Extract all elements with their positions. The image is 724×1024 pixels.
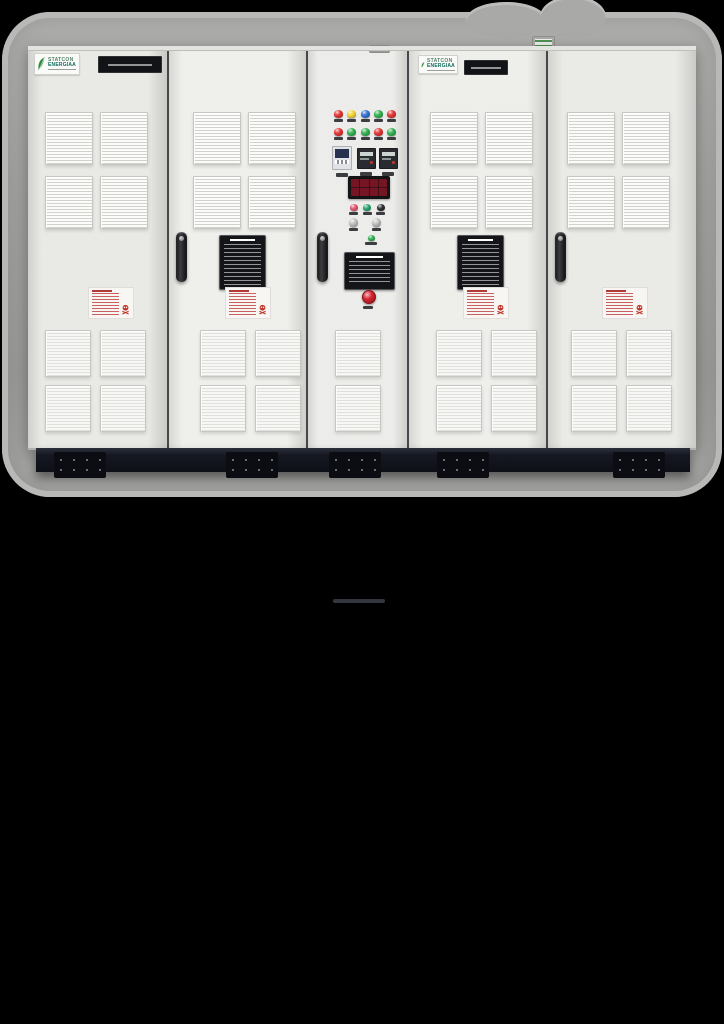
vent-filter	[100, 112, 148, 165]
vent-filter	[248, 176, 296, 229]
mini-indicator-green	[368, 235, 375, 241]
meter-readout	[360, 158, 369, 160]
mounting-foot	[54, 452, 106, 478]
vent-filter	[100, 330, 146, 377]
vent-filter	[100, 385, 146, 432]
mini-indicator-unit	[365, 235, 377, 245]
skull-hazard-icon	[635, 304, 644, 315]
pilot-light-unit	[361, 110, 370, 122]
brand-line2: ENERGIAA	[427, 64, 455, 71]
door-handle	[317, 232, 328, 282]
warning-text-lines	[92, 293, 119, 315]
cabinet-door-1: STATCON ENERGIAA	[28, 46, 167, 450]
pilot-light-green	[387, 128, 396, 136]
brand-text: STATCON ENERGIAA	[427, 59, 455, 71]
vent-filter	[193, 112, 241, 165]
brand-badge: STATCON ENERGIAA	[418, 55, 458, 74]
mini-indicator-label	[365, 242, 377, 245]
pilot-light-unit	[387, 128, 396, 140]
vent-filter	[335, 385, 381, 432]
meter-led	[370, 161, 373, 164]
mounting-foot	[226, 452, 278, 478]
warning-text-lines	[606, 293, 633, 315]
vent-filter	[255, 330, 301, 377]
brand-text: STATCON ENERGIAA	[48, 58, 76, 70]
vent-filter	[626, 330, 672, 377]
product-photo-stage: STATCON ENERGIAA	[0, 0, 724, 1024]
vent-filter	[100, 176, 148, 229]
led-digit	[370, 179, 378, 187]
door-handle	[176, 232, 187, 282]
brand-badge: STATCON ENERGIAA	[34, 53, 80, 75]
meter-label	[336, 173, 348, 177]
lamp-label	[349, 212, 358, 215]
door-handle	[555, 232, 566, 282]
pilot-light-unit	[334, 110, 343, 122]
vent-filter	[485, 112, 533, 165]
selector-label	[349, 228, 358, 231]
vent-filter	[622, 176, 670, 229]
vent-filter	[430, 176, 478, 229]
lamp-label	[374, 119, 383, 122]
mounting-foot	[329, 452, 381, 478]
estop-label	[363, 306, 373, 309]
cabinet-door-4: STATCON ENERGIAA	[407, 46, 546, 450]
control-door	[306, 46, 407, 450]
pilot-light-red	[374, 128, 383, 136]
lamp-label	[361, 137, 370, 140]
pilot-light-unit	[347, 128, 356, 140]
pilot-light-green	[347, 128, 356, 136]
skull-hazard-icon	[258, 304, 267, 315]
cabinet-door-5	[546, 46, 696, 450]
plate-text-lines	[462, 244, 499, 285]
lamp-label	[387, 119, 396, 122]
temperature-controller	[332, 146, 352, 170]
warning-sticker	[225, 287, 271, 319]
vent-column-bottom	[335, 330, 381, 432]
small-light-green	[363, 204, 371, 211]
cabinet-door-2	[167, 46, 306, 450]
controller-display	[335, 149, 349, 158]
led-digit	[379, 179, 387, 187]
vent-filter	[622, 112, 670, 165]
vent-filter	[335, 330, 381, 377]
lamp-label	[387, 137, 396, 140]
digital-panel-meter	[379, 148, 398, 169]
vent-filter	[200, 330, 246, 377]
vent-filter	[430, 112, 478, 165]
selector-unit	[372, 218, 381, 231]
leaf-icon	[37, 56, 46, 72]
pilot-light-red	[334, 128, 343, 136]
vent-grid-top	[567, 112, 670, 229]
plate-title	[468, 239, 493, 241]
power-cabinet: STATCON ENERGIAA	[28, 46, 696, 450]
cabinet-top-rail	[28, 46, 696, 51]
digital-panel-meter	[357, 148, 376, 169]
pilot-light-unit	[374, 128, 383, 140]
selector-switch	[349, 218, 358, 227]
pilot-light-unit	[349, 204, 358, 215]
lamp-label	[363, 212, 372, 215]
selector-switch	[372, 218, 381, 227]
rating-nameplate	[344, 252, 395, 290]
small-light-dark	[377, 204, 385, 211]
pilot-light-unit	[374, 110, 383, 122]
meter-display	[360, 152, 373, 156]
selector-label	[372, 228, 381, 231]
selector-switch-row	[349, 218, 381, 231]
vent-filter	[571, 330, 617, 377]
led-display-panel	[351, 179, 387, 196]
vent-grid-bottom	[571, 330, 672, 432]
pilot-light-yellow	[347, 110, 356, 118]
warning-sticker	[463, 287, 509, 319]
pilot-light-red	[334, 110, 343, 118]
lamp-label	[374, 137, 383, 140]
skull-hazard-icon	[496, 304, 505, 315]
vent-filter	[45, 330, 91, 377]
emergency-stop-button	[362, 290, 376, 304]
controller-base	[333, 599, 385, 603]
lamp-label	[347, 119, 356, 122]
vent-filter	[571, 385, 617, 432]
pilot-light-unit	[363, 204, 372, 215]
led-digit	[379, 188, 387, 196]
pilot-light-row-1	[334, 110, 396, 122]
vent-filter	[255, 385, 301, 432]
lamp-label	[347, 137, 356, 140]
vent-filter	[567, 176, 615, 229]
warning-title	[229, 290, 249, 292]
instruction-plate	[457, 235, 504, 290]
vent-filter	[626, 385, 672, 432]
warning-sticker	[88, 287, 134, 319]
mounting-foot	[613, 452, 665, 478]
vent-grid-bottom	[436, 330, 537, 432]
small-light-row	[349, 204, 385, 215]
lamp-label	[334, 137, 343, 140]
led-digit	[370, 188, 378, 196]
pilot-light-green	[361, 128, 370, 136]
vent-filter	[567, 112, 615, 165]
warning-title	[92, 290, 112, 292]
plate-text-lines	[349, 261, 390, 285]
vent-grid-top	[193, 112, 296, 229]
leaf-icon	[421, 58, 425, 72]
led-digit	[360, 179, 368, 187]
meter-readout	[382, 158, 391, 160]
selector-unit	[349, 218, 358, 231]
warning-text-lines	[229, 293, 256, 315]
pilot-light-unit	[334, 128, 343, 140]
vent-filter	[193, 176, 241, 229]
meter-led	[392, 161, 395, 164]
led-display	[348, 176, 390, 199]
warning-text-lines	[467, 293, 494, 315]
warning-title	[467, 290, 487, 292]
pilot-light-row-2	[334, 128, 396, 140]
led-digit	[351, 188, 359, 196]
lamp-label	[334, 119, 343, 122]
brand-line2: ENERGIAA	[48, 63, 76, 70]
warning-sticker	[602, 287, 648, 319]
small-light-red	[350, 204, 358, 211]
plate-title	[230, 239, 255, 241]
model-nameplate	[464, 60, 508, 75]
led-digit	[351, 179, 359, 187]
pilot-light-unit	[347, 110, 356, 122]
controller-buttons	[335, 160, 349, 164]
vent-grid-bottom	[45, 330, 146, 432]
vent-filter	[45, 112, 93, 165]
model-nameplate	[98, 56, 162, 73]
pilot-light-green	[374, 110, 383, 118]
skull-hazard-icon	[121, 304, 130, 315]
vent-filter	[436, 385, 482, 432]
pilot-light-blue	[361, 110, 370, 118]
meter-display	[382, 152, 395, 156]
vent-filter	[200, 385, 246, 432]
plate-title	[356, 256, 383, 258]
instruction-plate	[219, 235, 266, 290]
vent-grid-top	[430, 112, 533, 229]
vent-grid-bottom	[200, 330, 301, 432]
lamp-label	[376, 212, 385, 215]
plate-text-lines	[224, 244, 261, 285]
led-digit	[360, 188, 368, 196]
vent-filter	[248, 112, 296, 165]
pilot-light-unit	[361, 128, 370, 140]
vent-filter	[45, 385, 91, 432]
vent-filter	[491, 385, 537, 432]
warning-title	[606, 290, 626, 292]
vent-grid-top	[45, 112, 148, 229]
mounting-foot	[437, 452, 489, 478]
pilot-light-red	[387, 110, 396, 118]
vent-filter	[491, 330, 537, 377]
vent-filter	[485, 176, 533, 229]
vent-filter	[45, 176, 93, 229]
pilot-light-unit	[376, 204, 385, 215]
pilot-light-unit	[387, 110, 396, 122]
vent-filter	[436, 330, 482, 377]
frame-top-bump	[466, 2, 546, 38]
lamp-label	[361, 119, 370, 122]
